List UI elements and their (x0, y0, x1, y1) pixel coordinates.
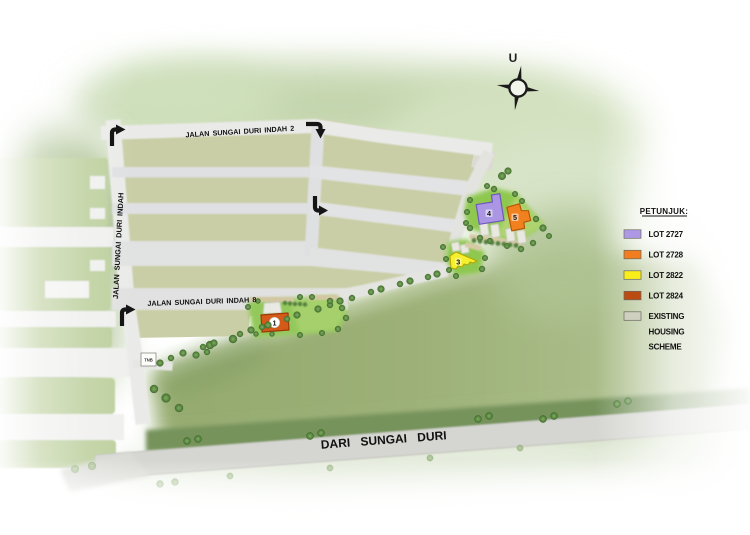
svg-text:5: 5 (513, 213, 517, 222)
svg-text:1: 1 (273, 318, 277, 327)
svg-text:PETUNJUK:: PETUNJUK: (640, 207, 688, 216)
svg-text:SCHEME: SCHEME (649, 343, 683, 352)
svg-text:EXISTING: EXISTING (649, 312, 685, 321)
svg-text:4: 4 (487, 209, 491, 218)
svg-text:U: U (509, 51, 518, 65)
svg-text:TNB: TNB (144, 358, 153, 363)
svg-text:LOT 2727: LOT 2727 (649, 230, 684, 239)
svg-text:HOUSING: HOUSING (649, 328, 685, 337)
svg-text:LOT 2824: LOT 2824 (649, 292, 684, 301)
svg-text:3: 3 (456, 257, 460, 266)
svg-text:LOT 2822: LOT 2822 (649, 271, 684, 280)
svg-text:LOT 2728: LOT 2728 (649, 251, 684, 260)
